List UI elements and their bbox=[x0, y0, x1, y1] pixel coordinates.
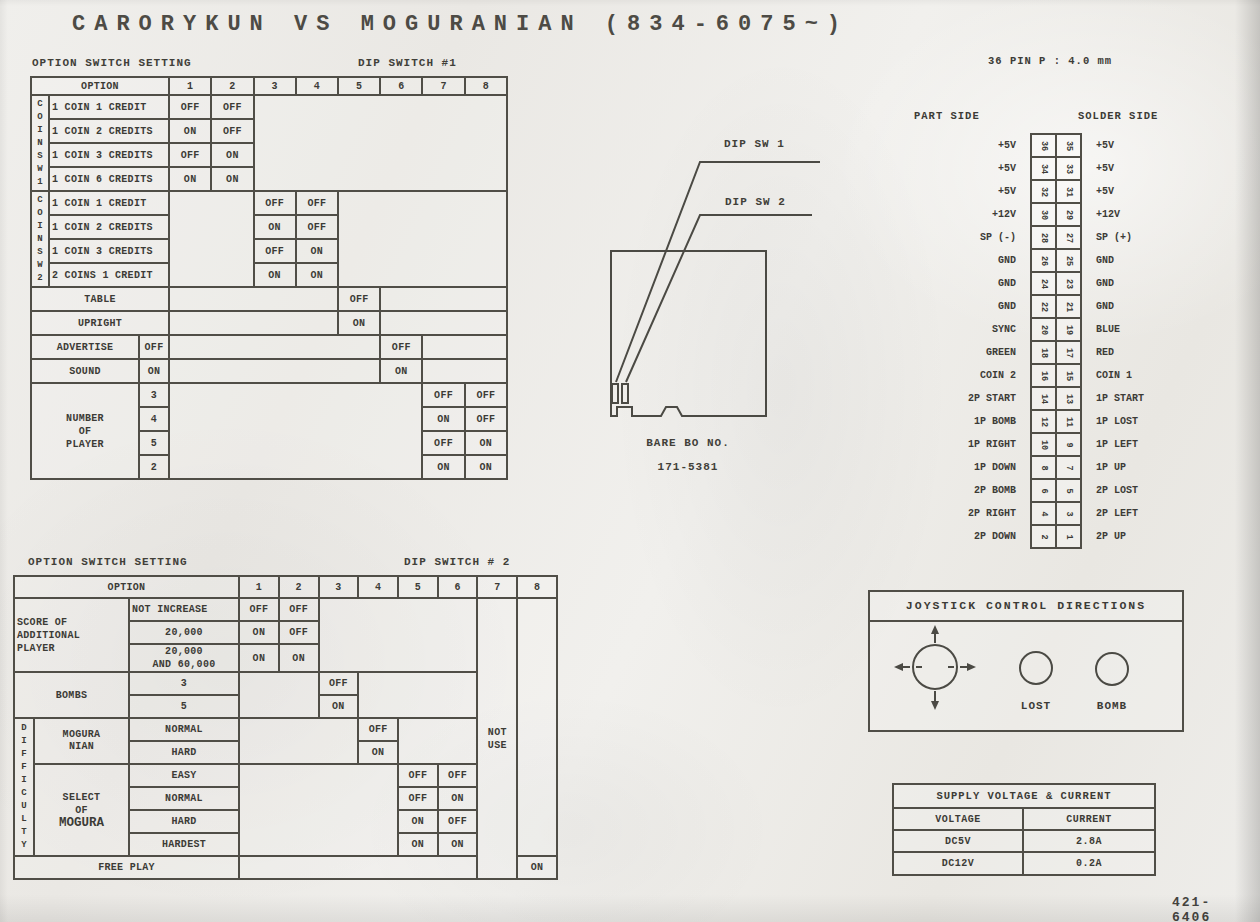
pin-box: 18 bbox=[1030, 340, 1057, 365]
pin-row: 2P DOWN212P UP bbox=[912, 524, 1144, 549]
dip-sw1-leader-line bbox=[616, 162, 820, 382]
pin-row: +5V3231+5V bbox=[912, 179, 1144, 204]
coin-sw2-vertical-label: COINSW2 bbox=[31, 191, 49, 287]
col-header: 3 bbox=[319, 576, 359, 598]
pin-box: 16 bbox=[1030, 363, 1057, 388]
pin-label-left: SYNC bbox=[912, 317, 1030, 342]
pin-row: 2P BOMB652P LOST bbox=[912, 478, 1144, 503]
pin-label-left: 1P DOWN bbox=[912, 455, 1030, 480]
switch-cell: ON bbox=[319, 695, 359, 718]
switch-cell: OFF bbox=[465, 407, 507, 431]
switch-cell: ON bbox=[169, 167, 211, 191]
switch-cell: ON bbox=[296, 239, 338, 263]
table-row: COINSW2 1 COIN 1 CREDIT OFF OFF bbox=[31, 191, 507, 215]
pin-row: SYNC2019BLUE bbox=[912, 317, 1144, 342]
sub-option-cell: HARDEST bbox=[129, 833, 239, 856]
dip2-switch-label: DIP SWITCH # 2 bbox=[404, 556, 510, 568]
table-row: SCORE OF ADDITIONAL PLAYER NOT INCREASE … bbox=[14, 598, 557, 621]
sub-option-cell: ON bbox=[139, 359, 169, 383]
pin-label-right: 1P LEFT bbox=[1082, 432, 1138, 457]
dip-switch-2-shape bbox=[622, 384, 628, 403]
option-cell: SELECT OF MOGURA bbox=[34, 764, 129, 856]
col-header: 1 bbox=[239, 576, 279, 598]
pin-label-left: 1P BOMB bbox=[912, 409, 1030, 434]
pin-label-left: SP (-) bbox=[912, 225, 1030, 250]
empty-cell bbox=[380, 311, 507, 335]
option-cell: FREE PLAY bbox=[14, 856, 239, 879]
switch-cell: ON bbox=[517, 856, 557, 879]
sub-option-cell: NORMAL bbox=[129, 787, 239, 810]
col-header: 2 bbox=[279, 576, 319, 598]
switch-cell: ON bbox=[279, 644, 319, 672]
table-row: COINSW1 1 COIN 1 CREDIT OFF OFF bbox=[31, 95, 507, 119]
table-row: TABLE OFF bbox=[31, 287, 507, 311]
option-cell: SOUND bbox=[31, 359, 139, 383]
pin-box: 7 bbox=[1055, 455, 1082, 480]
option-header-cell: OPTION bbox=[14, 576, 239, 598]
pin-label-right: GND bbox=[1082, 271, 1114, 296]
scanned-manual-page: CARORYKUN VS MOGURANIAN (834-6075~) OPTI… bbox=[0, 0, 1260, 922]
pin-row: GREEN1817RED bbox=[912, 340, 1144, 365]
pin-label-right: GND bbox=[1082, 248, 1114, 273]
empty-cell bbox=[358, 672, 477, 718]
switch-cell: ON bbox=[398, 833, 438, 856]
current-cell: 0.2A bbox=[1023, 852, 1155, 875]
pin-label-right: GND bbox=[1082, 294, 1114, 319]
empty-cell bbox=[169, 383, 422, 479]
pin-box: 17 bbox=[1055, 340, 1082, 365]
pin-row: GND2625GND bbox=[912, 248, 1144, 273]
sub-option-cell: 20,000 AND 60,000 bbox=[129, 644, 239, 672]
pin-row: 2P RIGHT432P LEFT bbox=[912, 501, 1144, 526]
pin-label-left: +5V bbox=[912, 156, 1030, 181]
pin-box: 22 bbox=[1030, 294, 1057, 319]
switch-cell: OFF bbox=[239, 598, 279, 621]
pin-row: +12V3029+12V bbox=[912, 202, 1144, 227]
switch-cell: ON bbox=[169, 119, 211, 143]
option-cell: 2 COINS 1 CREDIT bbox=[49, 263, 169, 287]
table-row: DC12V 0.2A bbox=[893, 852, 1155, 875]
pin-label-right: 1P LOST bbox=[1082, 409, 1138, 434]
pin-box: 2 bbox=[1030, 524, 1057, 549]
joystick-panel: JOYSTICK CONTROL DIRECTIONS LOST BOMB bbox=[868, 590, 1184, 732]
pin-box: 23 bbox=[1055, 271, 1082, 296]
part-side-label: PART SIDE bbox=[914, 110, 980, 122]
option-cell: 1 COIN 3 CREDITS bbox=[49, 239, 169, 263]
pin-row: 2P START14131P START bbox=[912, 386, 1144, 411]
empty-cell bbox=[422, 359, 507, 383]
sub-option-cell: NORMAL bbox=[129, 718, 239, 741]
pin-box: 3 bbox=[1055, 501, 1082, 526]
pin-label-left: GREEN bbox=[912, 340, 1030, 365]
pin-box: 32 bbox=[1030, 179, 1057, 204]
empty-cell bbox=[338, 191, 507, 287]
connector-pinout: +5V3635+5V +5V3433+5V +5V3231+5V +12V302… bbox=[912, 133, 1144, 549]
pin-box: 13 bbox=[1055, 386, 1082, 411]
empty-cell bbox=[169, 311, 338, 335]
pin-box: 21 bbox=[1055, 294, 1082, 319]
pin-box: 28 bbox=[1030, 225, 1057, 250]
pin-box: 1 bbox=[1055, 524, 1082, 549]
table-row: SELECT OF MOGURA EASY OFF OFF bbox=[14, 764, 557, 787]
sub-option-cell: 3 bbox=[139, 383, 169, 407]
empty-cell bbox=[239, 672, 318, 718]
lost-button-label: LOST bbox=[1014, 700, 1058, 712]
pin-label-right: SP (+) bbox=[1082, 225, 1132, 250]
table-row: OPTION 1 2 3 4 5 6 7 8 bbox=[14, 576, 557, 598]
empty-cell bbox=[169, 359, 380, 383]
pin-label-left: 2P RIGHT bbox=[912, 501, 1030, 526]
table-row: ADVERTISE OFF OFF bbox=[31, 335, 507, 359]
sub-option-cell: HARD bbox=[129, 810, 239, 833]
pin-label-right: COIN 1 bbox=[1082, 363, 1132, 388]
switch-cell: ON bbox=[380, 359, 422, 383]
up-arrowhead-icon bbox=[931, 625, 939, 634]
pin-label-left: 2P BOMB bbox=[912, 478, 1030, 503]
option-cell: 1 COIN 1 CREDIT bbox=[49, 191, 169, 215]
pin-box: 27 bbox=[1055, 225, 1082, 250]
pin-box: 33 bbox=[1055, 156, 1082, 181]
empty-cell bbox=[169, 191, 253, 287]
pin-box: 19 bbox=[1055, 317, 1082, 342]
option-cell: TABLE bbox=[31, 287, 169, 311]
pin-box: 31 bbox=[1055, 179, 1082, 204]
col-header: VOLTAGE bbox=[893, 808, 1023, 830]
select-of-label: SELECT OF bbox=[37, 791, 126, 817]
pin-box: 15 bbox=[1055, 363, 1082, 388]
option-cell: SCORE OF ADDITIONAL PLAYER bbox=[14, 598, 129, 672]
switch-cell: ON bbox=[438, 833, 478, 856]
switch-cell: OFF bbox=[169, 143, 211, 167]
sub-option-cell: 2 bbox=[139, 455, 169, 479]
sub-option-cell: 5 bbox=[139, 431, 169, 455]
pin-box: 20 bbox=[1030, 317, 1057, 342]
solder-side-label: SOLDER SIDE bbox=[1078, 110, 1158, 122]
pin-label-right: 2P LOST bbox=[1082, 478, 1138, 503]
coin-sw1-vertical-label: COINSW1 bbox=[31, 95, 49, 191]
table-row: DIFFICULTY MOGURA NIAN NORMAL OFF bbox=[14, 718, 557, 741]
col-header: 5 bbox=[398, 576, 438, 598]
col-header: 3 bbox=[254, 77, 296, 95]
dip-switch-1-shape bbox=[612, 384, 618, 403]
supply-table: SUPPLY VOLTAGE & CURRENT VOLTAGE CURRENT… bbox=[892, 783, 1156, 876]
switch-cell: OFF bbox=[422, 383, 464, 407]
pin-label-right: BLUE bbox=[1082, 317, 1120, 342]
switch-cell: ON bbox=[211, 143, 253, 167]
switch-cell: ON bbox=[422, 407, 464, 431]
pin-label-right: RED bbox=[1082, 340, 1114, 365]
switch-cell: ON bbox=[438, 787, 478, 810]
empty-cell bbox=[398, 718, 477, 764]
down-arrowhead-icon bbox=[931, 701, 939, 710]
empty-cell bbox=[239, 856, 477, 879]
pin-label-right: +5V bbox=[1082, 179, 1114, 204]
switch-cell: ON bbox=[422, 455, 464, 479]
dip1-caption: OPTION SWITCH SETTING bbox=[32, 57, 192, 69]
sub-option-cell: 4 bbox=[139, 407, 169, 431]
dip1-switch-label: DIP SWITCH #1 bbox=[358, 57, 457, 69]
option-cell: 1 COIN 2 CREDITS bbox=[49, 215, 169, 239]
joystick-panel-title: JOYSTICK CONTROL DIRECTIONS bbox=[870, 592, 1182, 622]
col-header: 4 bbox=[296, 77, 338, 95]
table-row: SOUND ON ON bbox=[31, 359, 507, 383]
option-cell: UPRIGHT bbox=[31, 311, 169, 335]
switch-cell: OFF bbox=[279, 621, 319, 644]
option-cell: 1 COIN 6 CREDITS bbox=[49, 167, 169, 191]
pin-box: 9 bbox=[1055, 432, 1082, 457]
table-row: FREE PLAY ON bbox=[14, 856, 557, 879]
switch-cell: OFF bbox=[422, 431, 464, 455]
switch-cell: ON bbox=[465, 455, 507, 479]
col-header: 8 bbox=[517, 576, 557, 598]
dip-sw1-label: DIP SW 1 bbox=[724, 138, 785, 150]
pin-box: 8 bbox=[1030, 455, 1057, 480]
col-header: 4 bbox=[358, 576, 398, 598]
joystick-diagram bbox=[870, 622, 1178, 728]
switch-cell: OFF bbox=[380, 335, 422, 359]
pin-label-right: 2P UP bbox=[1082, 524, 1126, 549]
empty-cell bbox=[169, 287, 338, 311]
switch-cell: OFF bbox=[254, 191, 296, 215]
pcb-diagram bbox=[570, 120, 830, 480]
pin-label-left: 2P DOWN bbox=[912, 524, 1030, 549]
pin-label-left: GND bbox=[912, 294, 1030, 319]
table-row: OPTION 1 2 3 4 5 6 7 8 bbox=[31, 77, 507, 95]
pin-label-left: +12V bbox=[912, 202, 1030, 227]
switch-cell: OFF bbox=[319, 672, 359, 695]
switch-cell: ON bbox=[254, 215, 296, 239]
switch-cell: ON bbox=[239, 644, 279, 672]
pin-box: 35 bbox=[1055, 133, 1082, 158]
pin-box: 4 bbox=[1030, 501, 1057, 526]
table-row: NUMBER OF PLAYER 3 OFF OFF bbox=[31, 383, 507, 407]
pin-label-left: GND bbox=[912, 271, 1030, 296]
pin-row: 1P DOWN871P UP bbox=[912, 455, 1144, 480]
table-row: VOLTAGE CURRENT bbox=[893, 808, 1155, 830]
pin-row: 1P RIGHT1091P LEFT bbox=[912, 432, 1144, 457]
current-cell: 2.8A bbox=[1023, 830, 1155, 852]
pin-row: 1P BOMB12111P LOST bbox=[912, 409, 1144, 434]
pin-label-right: +12V bbox=[1082, 202, 1120, 227]
col-header: 6 bbox=[380, 77, 422, 95]
sub-option-cell: NOT INCREASE bbox=[129, 598, 239, 621]
left-arrowhead-icon bbox=[894, 663, 903, 671]
pin-box: 25 bbox=[1055, 248, 1082, 273]
pin-label-left: 1P RIGHT bbox=[912, 432, 1030, 457]
pin-box: 6 bbox=[1030, 478, 1057, 503]
pin-box: 5 bbox=[1055, 478, 1082, 503]
lost-button-circle bbox=[1020, 652, 1052, 684]
option-cell: ADVERTISE bbox=[31, 335, 139, 359]
pin-box: 26 bbox=[1030, 248, 1057, 273]
pin-box: 11 bbox=[1055, 409, 1082, 434]
pin-label-left: GND bbox=[912, 248, 1030, 273]
doc-number: 421- 6406 bbox=[1172, 895, 1260, 922]
pin-box: 30 bbox=[1030, 202, 1057, 227]
right-arrowhead-icon bbox=[967, 663, 976, 671]
pin-row: GND2221GND bbox=[912, 294, 1144, 319]
difficulty-vertical-label: DIFFICULTY bbox=[14, 718, 34, 856]
empty-cell bbox=[239, 764, 398, 856]
connector-title: 36 PIN P : 4.0 mm bbox=[988, 55, 1112, 67]
table-row: SUPPLY VOLTAGE & CURRENT bbox=[893, 784, 1155, 808]
switch-cell: OFF bbox=[465, 383, 507, 407]
col-header: 7 bbox=[477, 576, 517, 598]
option-cell: 1 COIN 2 CREDITS bbox=[49, 119, 169, 143]
switch-cell: ON bbox=[296, 263, 338, 287]
pin-row: GND2423GND bbox=[912, 271, 1144, 296]
sub-option-cell: OFF bbox=[139, 335, 169, 359]
dip-sw2-label: DIP SW 2 bbox=[725, 196, 786, 208]
switch-cell: ON bbox=[338, 311, 380, 335]
col-header: 2 bbox=[211, 77, 253, 95]
pin-label-left: +5V bbox=[912, 179, 1030, 204]
bomb-button-label: BOMB bbox=[1090, 700, 1134, 712]
col-header: 8 bbox=[465, 77, 507, 95]
board-number: BARE BO NO. 171-5381 bbox=[608, 431, 768, 479]
sub-option-cell: 20,000 bbox=[129, 621, 239, 644]
mogura-label: MOGURA bbox=[37, 817, 126, 829]
switch-cell: OFF bbox=[211, 95, 253, 119]
switch-cell: OFF bbox=[438, 810, 478, 833]
col-header: 1 bbox=[169, 77, 211, 95]
pin-box: 34 bbox=[1030, 156, 1057, 181]
switch-cell: OFF bbox=[296, 191, 338, 215]
empty-cell bbox=[239, 718, 358, 764]
pin-box: 14 bbox=[1030, 386, 1057, 411]
page-title: CARORYKUN VS MOGURANIAN (834-6075~) bbox=[72, 12, 849, 37]
empty-cell bbox=[422, 335, 507, 359]
table-row: DC5V 2.8A bbox=[893, 830, 1155, 852]
switch-cell: OFF bbox=[398, 764, 438, 787]
empty-cell bbox=[380, 287, 507, 311]
switch-cell: ON bbox=[254, 263, 296, 287]
pin-label-right: +5V bbox=[1082, 133, 1114, 158]
dip2-caption: OPTION SWITCH SETTING bbox=[28, 556, 188, 568]
switch-cell: ON bbox=[465, 431, 507, 455]
switch-cell: OFF bbox=[254, 239, 296, 263]
pin-row: +5V3635+5V bbox=[912, 133, 1144, 158]
pin-label-right: 1P UP bbox=[1082, 455, 1126, 480]
switch-cell: ON bbox=[211, 167, 253, 191]
pin-label-left: COIN 2 bbox=[912, 363, 1030, 388]
joystick-panel-body: LOST BOMB bbox=[870, 622, 1182, 728]
empty-cell bbox=[254, 95, 508, 191]
switch-cell: OFF bbox=[279, 598, 319, 621]
switch-cell: OFF bbox=[358, 718, 398, 741]
pin-label-right: 1P START bbox=[1082, 386, 1144, 411]
dip-switch-1-table: OPTION 1 2 3 4 5 6 7 8 COINSW1 1 COIN 1 … bbox=[30, 76, 508, 480]
sub-option-cell: HARD bbox=[129, 741, 239, 764]
col-header: 6 bbox=[438, 576, 478, 598]
switch-cell: ON bbox=[398, 810, 438, 833]
switch-cell: OFF bbox=[169, 95, 211, 119]
option-cell: 1 COIN 1 CREDIT bbox=[49, 95, 169, 119]
not-use-cell: NOT USE bbox=[477, 598, 517, 879]
sub-option-cell: 3 bbox=[129, 672, 239, 695]
switch-cell: OFF bbox=[211, 119, 253, 143]
switch-cell: OFF bbox=[438, 764, 478, 787]
col-header: CURRENT bbox=[1023, 808, 1155, 830]
sub-option-cell: 5 bbox=[129, 695, 239, 718]
pin-label-left: +5V bbox=[912, 133, 1030, 158]
pin-label-right: 2P LEFT bbox=[1082, 501, 1138, 526]
pin-row: COIN 21615COIN 1 bbox=[912, 363, 1144, 388]
pin-box: 12 bbox=[1030, 409, 1057, 434]
option-cell: NUMBER OF PLAYER bbox=[31, 383, 139, 479]
dip-sw2-leader-line bbox=[626, 215, 812, 382]
pin-box: 36 bbox=[1030, 133, 1057, 158]
pin-label-right: +5V bbox=[1082, 156, 1114, 181]
option-cell: BOMBS bbox=[14, 672, 129, 718]
pin-row: +5V3433+5V bbox=[912, 156, 1144, 181]
col-header: 7 bbox=[422, 77, 464, 95]
supply-table-title: SUPPLY VOLTAGE & CURRENT bbox=[893, 784, 1155, 808]
dip-switch-2-table: OPTION 1 2 3 4 5 6 7 8 SCORE OF ADDITION… bbox=[13, 575, 558, 880]
switch-cell: ON bbox=[358, 741, 398, 764]
voltage-cell: DC5V bbox=[893, 830, 1023, 852]
switch-cell: OFF bbox=[338, 287, 380, 311]
option-cell: 1 COIN 3 CREDITS bbox=[49, 143, 169, 167]
pin-row: SP (-)2827SP (+) bbox=[912, 225, 1144, 250]
option-header-cell: OPTION bbox=[31, 77, 169, 95]
switch-cell: OFF bbox=[398, 787, 438, 810]
pin-label-left: 2P START bbox=[912, 386, 1030, 411]
option-cell: MOGURA NIAN bbox=[34, 718, 129, 764]
table-row: BOMBS 3 OFF bbox=[14, 672, 557, 695]
switch-cell: ON bbox=[239, 621, 279, 644]
empty-cell bbox=[517, 598, 557, 856]
pin-box: 29 bbox=[1055, 202, 1082, 227]
voltage-cell: DC12V bbox=[893, 852, 1023, 875]
switch-cell: OFF bbox=[296, 215, 338, 239]
empty-cell bbox=[319, 598, 478, 672]
table-row: UPRIGHT ON bbox=[31, 311, 507, 335]
pin-box: 24 bbox=[1030, 271, 1057, 296]
col-header: 5 bbox=[338, 77, 380, 95]
sub-option-cell: EASY bbox=[129, 764, 239, 787]
bomb-button-circle bbox=[1096, 653, 1128, 685]
empty-cell bbox=[169, 335, 380, 359]
pin-box: 10 bbox=[1030, 432, 1057, 457]
